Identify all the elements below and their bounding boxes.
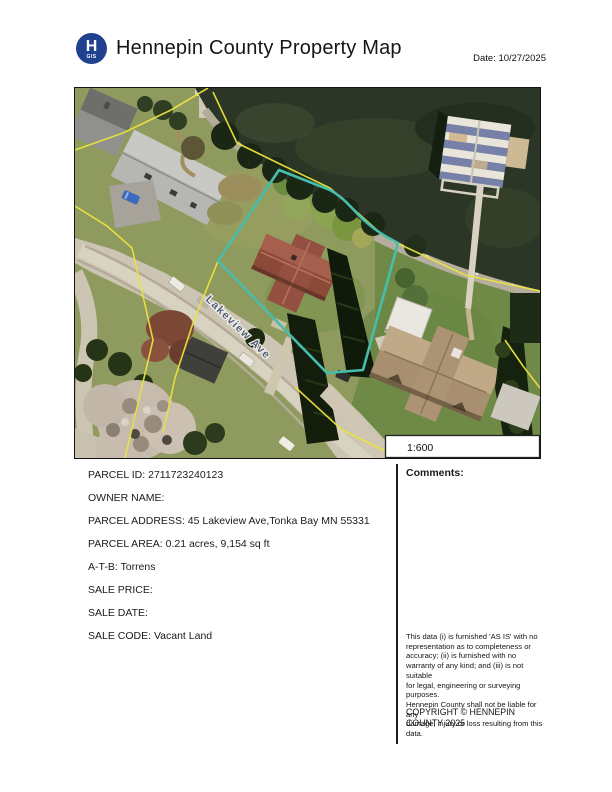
- owner-name-row: OWNER NAME:: [88, 492, 370, 515]
- scale-box: 1:600: [386, 436, 540, 458]
- aerial-map-canvas: Lakeview Ave 1:600: [75, 88, 540, 458]
- gis-logo: H GIS: [76, 33, 107, 64]
- logo-letter: H: [86, 39, 98, 55]
- scale-label: 1:600: [407, 442, 433, 454]
- parcel-address-row: PARCEL ADDRESS: 45 Lakeview Ave,Tonka Ba…: [88, 515, 370, 538]
- aerial-map: Lakeview Ave 1:600: [74, 87, 541, 459]
- sale-code-row: SALE CODE: Vacant Land: [88, 630, 370, 653]
- parcel-area-row: PARCEL AREA: 0.21 acres, 9,154 sq ft: [88, 538, 370, 561]
- comments-divider: [396, 464, 398, 744]
- parcel-info: PARCEL ID: 2711723240123 OWNER NAME: PAR…: [88, 469, 370, 653]
- atb-row: A-T-B: Torrens: [88, 561, 370, 584]
- comments-label: Comments:: [406, 467, 464, 479]
- logo-sub-label: GIS: [86, 55, 96, 60]
- copyright-text: COPYRIGHT © HENNEPIN COUNTY 2025: [406, 707, 548, 729]
- date-label: Date: 10/27/2025: [473, 53, 546, 64]
- sale-date-row: SALE DATE:: [88, 607, 370, 630]
- sale-price-row: SALE PRICE:: [88, 584, 370, 607]
- page-title: Hennepin County Property Map: [116, 37, 402, 60]
- property-map-page: H GIS Hennepin County Property Map Date:…: [0, 0, 612, 792]
- parcel-id-row: PARCEL ID: 2711723240123: [88, 469, 370, 492]
